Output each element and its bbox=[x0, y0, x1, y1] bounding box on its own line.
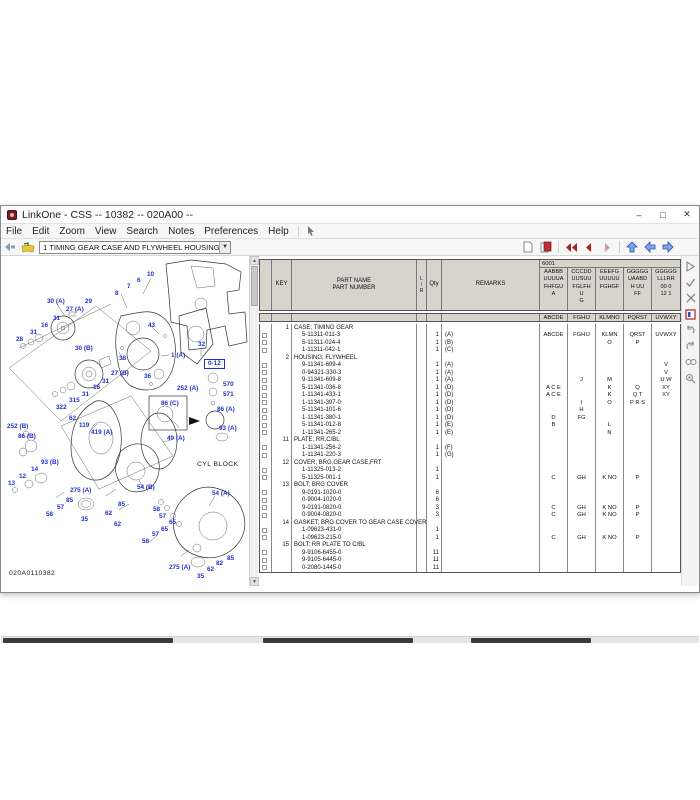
remarks-cell: (D) bbox=[442, 399, 540, 407]
redo-icon[interactable] bbox=[684, 339, 698, 353]
group-row[interactable]: 15BOLT; RR PLATE TO C/BL bbox=[260, 542, 680, 550]
checkbox-cell bbox=[260, 497, 272, 505]
part-row[interactable]: 9-0191-1020-06 bbox=[260, 489, 680, 497]
serial-code: KLMNO bbox=[596, 314, 624, 321]
group-row[interactable]: 11PLATE; RR,C/BL bbox=[260, 437, 680, 445]
checkbox-cell bbox=[260, 332, 272, 340]
scrollbar-thumb[interactable] bbox=[3, 638, 173, 643]
menu-help[interactable]: Help bbox=[263, 226, 294, 237]
qty-cell: 11 bbox=[427, 564, 442, 572]
remarks-cell bbox=[442, 557, 540, 565]
diagram-callout: 31 bbox=[82, 392, 89, 398]
scroll-up-icon[interactable]: ▲ bbox=[250, 256, 259, 265]
qty-cell: 1 bbox=[427, 422, 442, 430]
applicability-cell bbox=[540, 339, 568, 347]
part-cell: 1-11341-256-2 bbox=[292, 444, 417, 452]
part-row[interactable]: 1-11341-265-21(E)N bbox=[260, 429, 680, 437]
lr-cell bbox=[417, 414, 427, 422]
group-row[interactable]: 14GASKET; BRG COVER TO GEAR CASE COVER bbox=[260, 519, 680, 527]
view-selector-value: 1 TIMING GEAR CASE AND FLYWHEEL HOUSING bbox=[40, 243, 219, 252]
applicability-cell bbox=[568, 482, 596, 490]
lr-cell bbox=[417, 429, 427, 437]
applicability-cell bbox=[540, 354, 568, 362]
part-cell: BOLT; RR PLATE TO C/BL bbox=[292, 542, 417, 550]
part-number: 5-11311-011-3 bbox=[292, 332, 340, 338]
group-row[interactable]: 12COVER; BRG,GEAR CASE,FRT bbox=[260, 459, 680, 467]
next-page-icon[interactable] bbox=[599, 240, 615, 254]
serial-column: CCCDD UUSUU FGLFH U G bbox=[568, 268, 596, 310]
applicability-cell: K NO bbox=[596, 504, 624, 512]
part-row[interactable]: 5-11341-036-81(D)A C EKQXY bbox=[260, 384, 680, 392]
applicability-cell bbox=[624, 414, 652, 422]
diagram-callout: 31 bbox=[30, 330, 37, 336]
part-number: 1-09623-431-0 bbox=[292, 527, 341, 533]
part-row[interactable]: 5-11341-101-61(D)H bbox=[260, 407, 680, 415]
qty-cell bbox=[427, 459, 442, 467]
key-cell bbox=[272, 362, 292, 370]
find-icon[interactable] bbox=[684, 355, 698, 369]
app-window: LinkOne - CSS -- 10382 -- 020A00 -- – □ … bbox=[0, 205, 700, 593]
key-cell bbox=[272, 392, 292, 400]
applicability-cell bbox=[596, 444, 624, 452]
menu-preferences[interactable]: Preferences bbox=[199, 226, 263, 237]
group-row[interactable]: 2HOUSING; FLYWHEEL bbox=[260, 354, 680, 362]
row-checkbox[interactable] bbox=[262, 490, 267, 495]
part-name: HOUSING; FLYWHEEL bbox=[292, 355, 357, 361]
diagram-scrollbar[interactable]: ▲ ▼ bbox=[249, 256, 258, 586]
remarks-cell bbox=[442, 527, 540, 535]
applicability-cell bbox=[596, 362, 624, 370]
remark-code: (E) bbox=[442, 422, 453, 428]
applicability-cell bbox=[652, 399, 680, 407]
header-remarks: REMARKS bbox=[442, 260, 540, 310]
applicability-cell bbox=[624, 489, 652, 497]
key-cell bbox=[272, 452, 292, 460]
applicability-cell: M bbox=[596, 377, 624, 385]
row-checkbox[interactable] bbox=[262, 408, 267, 413]
part-row[interactable]: 9-0191-0820-03CGHK NOP bbox=[260, 504, 680, 512]
applicability-cell bbox=[652, 474, 680, 482]
row-checkbox[interactable] bbox=[262, 378, 267, 383]
pointer-icon[interactable] bbox=[304, 224, 320, 238]
part-number: 9-0191-0820-0 bbox=[292, 505, 341, 511]
remarks-cell: (D) bbox=[442, 384, 540, 392]
applicability-cell bbox=[624, 497, 652, 505]
applicability-cell bbox=[596, 347, 624, 355]
qty-cell: 1 bbox=[427, 414, 442, 422]
remarks-cell bbox=[442, 534, 540, 542]
lr-cell bbox=[417, 437, 427, 445]
group-row[interactable]: 13BOLT; BRG COVER bbox=[260, 482, 680, 490]
diagram-callout: 65 bbox=[161, 527, 168, 533]
diagram-callout: 27 (B) bbox=[111, 371, 129, 377]
diagram-callout: 85 bbox=[118, 502, 125, 508]
part-number: 9-9106-6455-0 bbox=[292, 550, 341, 556]
screenshot-canvas: { "window": { "title": "LinkOne - CSS --… bbox=[0, 0, 700, 800]
applicability-cell bbox=[596, 414, 624, 422]
row-checkbox[interactable] bbox=[262, 513, 267, 518]
part-row[interactable]: 5-11341-012-81(E)BL bbox=[260, 422, 680, 430]
first-page-icon[interactable] bbox=[563, 240, 579, 254]
key-cell bbox=[272, 384, 292, 392]
part-row[interactable]: 1-11341-433-11(D)A C EKQ TXY bbox=[260, 392, 680, 400]
key-cell bbox=[272, 422, 292, 430]
part-number: 1-11325-013-2 bbox=[292, 467, 341, 473]
remarks-cell bbox=[442, 542, 540, 550]
row-checkbox[interactable] bbox=[262, 453, 267, 458]
menu-file[interactable]: File bbox=[1, 226, 27, 237]
row-checkbox[interactable] bbox=[262, 528, 267, 533]
remark-code: (G) bbox=[442, 452, 454, 458]
row-checkbox[interactable] bbox=[262, 393, 267, 398]
diagram-text: 020A0110382 bbox=[9, 571, 55, 578]
header-checkbox-col bbox=[260, 260, 272, 310]
applicability-cell bbox=[596, 549, 624, 557]
row-checkbox[interactable] bbox=[262, 333, 267, 338]
part-number: 1-11341-397-0 bbox=[292, 400, 341, 406]
diagram-callout: 58 bbox=[46, 512, 53, 518]
bottom-scrollbar[interactable] bbox=[1, 636, 699, 643]
lr-cell bbox=[417, 369, 427, 377]
lr-cell bbox=[417, 512, 427, 520]
qty-cell: 6 bbox=[427, 489, 442, 497]
checkbox-cell bbox=[260, 459, 272, 467]
back-icon[interactable] bbox=[2, 240, 18, 254]
applicability-cell bbox=[624, 324, 652, 332]
row-checkbox[interactable] bbox=[262, 565, 267, 570]
key-cell: 14 bbox=[272, 519, 292, 527]
applicability-cell: V bbox=[652, 362, 680, 370]
applicability-cell bbox=[652, 354, 680, 362]
part-row[interactable]: 5-11311-011-31(A)ABCDEFGHIJKLMNQRSTUVWXY bbox=[260, 332, 680, 340]
row-checkbox[interactable] bbox=[262, 348, 267, 353]
part-row[interactable]: 1-09623-431-01 bbox=[260, 527, 680, 535]
applicability-cell bbox=[624, 549, 652, 557]
part-row[interactable]: 5-11325-001-11CGHK NOP bbox=[260, 474, 680, 482]
key-cell: 2 bbox=[272, 354, 292, 362]
applicability-cell: FG bbox=[568, 414, 596, 422]
applicability-cell: C bbox=[540, 534, 568, 542]
applicability-cell bbox=[540, 429, 568, 437]
parts-table-pane: KEY PART NAME PART NUMBER L / R Qty REMA… bbox=[259, 256, 681, 586]
part-row[interactable]: 5-11311-024-41(B)OP bbox=[260, 339, 680, 347]
page-icon[interactable] bbox=[520, 240, 536, 254]
part-cell: 9-0191-1020-0 bbox=[292, 489, 417, 497]
parts-table: KEY PART NAME PART NUMBER L / R Qty REMA… bbox=[259, 256, 681, 586]
nav-right-icon[interactable] bbox=[660, 240, 676, 254]
menu-view[interactable]: View bbox=[90, 226, 122, 237]
row-checkbox[interactable] bbox=[262, 498, 267, 503]
applicability-cell: GH bbox=[568, 474, 596, 482]
applicability-cell: UVWXY bbox=[652, 332, 680, 340]
check-icon[interactable] bbox=[684, 275, 698, 289]
nav-up-icon[interactable] bbox=[624, 240, 640, 254]
part-number: 1-11341-256-2 bbox=[292, 445, 341, 451]
run-icon[interactable] bbox=[684, 259, 698, 273]
row-checkbox[interactable] bbox=[262, 550, 267, 555]
scrollbar-thumb[interactable] bbox=[471, 638, 591, 643]
scrollbar-thumb[interactable] bbox=[251, 266, 258, 306]
lr-cell bbox=[417, 392, 427, 400]
applicability-cell bbox=[568, 549, 596, 557]
applicability-cell: K NO bbox=[596, 474, 624, 482]
lr-cell bbox=[417, 399, 427, 407]
header-part: PART NAME PART NUMBER bbox=[292, 260, 417, 310]
remarks-cell bbox=[442, 512, 540, 520]
lr-cell bbox=[417, 564, 427, 572]
applicability-cell bbox=[652, 557, 680, 565]
nav-left-icon[interactable] bbox=[642, 240, 658, 254]
serial-label: 6001 bbox=[540, 260, 680, 268]
applicability-cell: P bbox=[624, 339, 652, 347]
applicability-cell bbox=[652, 437, 680, 445]
checkbox-cell bbox=[260, 392, 272, 400]
applicability-cell: GH bbox=[568, 534, 596, 542]
qty-cell: 1 bbox=[427, 407, 442, 415]
checkbox-cell bbox=[260, 429, 272, 437]
part-row[interactable]: 1-11341-256-21(F) bbox=[260, 444, 680, 452]
scrollbar-thumb[interactable] bbox=[263, 638, 413, 643]
diagram-callout: 31 bbox=[102, 379, 109, 385]
applicability-cell bbox=[652, 467, 680, 475]
applicability-cell bbox=[596, 542, 624, 550]
part-cell: 9-11341-609-4 bbox=[292, 362, 417, 370]
key-cell bbox=[272, 557, 292, 565]
remarks-cell: (D) bbox=[442, 414, 540, 422]
row-checkbox[interactable] bbox=[262, 430, 267, 435]
row-checkbox[interactable] bbox=[262, 340, 267, 345]
lr-cell bbox=[417, 422, 427, 430]
applicability-cell bbox=[624, 527, 652, 535]
applicability-cell: P R S bbox=[624, 399, 652, 407]
part-cell: 0-2080-1445-0 bbox=[292, 564, 417, 572]
key-cell bbox=[272, 497, 292, 505]
applicability-cell: GH bbox=[568, 504, 596, 512]
checkbox-cell bbox=[260, 324, 272, 332]
remarks-cell bbox=[442, 467, 540, 475]
row-checkbox[interactable] bbox=[262, 370, 267, 375]
qty-cell: 1 bbox=[427, 399, 442, 407]
remarks-cell: (A) bbox=[442, 377, 540, 385]
diagram-callout: 57 bbox=[152, 532, 159, 538]
remarks-cell bbox=[442, 549, 540, 557]
close-button[interactable]: ✕ bbox=[675, 206, 699, 223]
diagram-callout: 62 bbox=[114, 522, 121, 528]
diagram-callout: 35 bbox=[197, 574, 204, 580]
zoom-icon[interactable] bbox=[684, 371, 698, 385]
applicability-cell bbox=[568, 452, 596, 460]
row-checkbox[interactable] bbox=[262, 363, 267, 368]
part-cell: 1-11341-380-1 bbox=[292, 414, 417, 422]
scroll-down-icon[interactable]: ▼ bbox=[250, 577, 259, 586]
applicability-cell: A C E bbox=[540, 392, 568, 400]
row-checkbox[interactable] bbox=[262, 445, 267, 450]
applicability-cell bbox=[540, 519, 568, 527]
part-row[interactable]: 1-11325-013-21 bbox=[260, 467, 680, 475]
applicability-cell bbox=[596, 452, 624, 460]
qty-cell: 11 bbox=[427, 557, 442, 565]
part-row[interactable]: 0-9004-0820-03CGHK NOP bbox=[260, 512, 680, 520]
part-row[interactable]: 0-94321-330-31(A)V bbox=[260, 369, 680, 377]
group-row[interactable]: 1CASE; TIMING GEAR bbox=[260, 324, 680, 332]
part-row[interactable]: 1-09623-215-01CGHK NOP bbox=[260, 534, 680, 542]
applicability-cell: L bbox=[596, 422, 624, 430]
row-checkbox[interactable] bbox=[262, 535, 267, 540]
diagram-callout: 36 bbox=[144, 374, 151, 380]
applicability-cell bbox=[624, 482, 652, 490]
applicability-cell bbox=[540, 407, 568, 415]
applicability-cell bbox=[540, 347, 568, 355]
applicability-cell: XY bbox=[652, 392, 680, 400]
applicability-cell bbox=[624, 467, 652, 475]
applicability-cell bbox=[652, 482, 680, 490]
header-qty: Qty bbox=[427, 260, 442, 310]
applicability-cell bbox=[540, 557, 568, 565]
part-number: 9-0191-1020-0 bbox=[292, 490, 341, 496]
diagram-callout: 28 bbox=[16, 337, 23, 343]
applicability-cell bbox=[652, 422, 680, 430]
applicability-cell bbox=[596, 467, 624, 475]
checkbox-cell bbox=[260, 512, 272, 520]
remark-code: (D) bbox=[442, 415, 453, 421]
diagram-callout: 13 bbox=[8, 481, 15, 487]
part-row[interactable]: 9-9105-6445-011 bbox=[260, 557, 680, 565]
row-checkbox[interactable] bbox=[262, 505, 267, 510]
applicability-cell bbox=[540, 324, 568, 332]
part-row[interactable]: 0-9004-1020-06 bbox=[260, 497, 680, 505]
key-cell: 1 bbox=[272, 324, 292, 332]
key-cell bbox=[272, 504, 292, 512]
menu-zoom[interactable]: Zoom bbox=[54, 226, 90, 237]
diagram-callout: 49 (A) bbox=[167, 436, 185, 442]
checkbox-cell bbox=[260, 377, 272, 385]
remarks-cell bbox=[442, 489, 540, 497]
diagram-callout: 6 bbox=[137, 278, 141, 284]
part-row[interactable]: 0-2080-1445-011 bbox=[260, 564, 680, 572]
menu-notes[interactable]: Notes bbox=[163, 226, 199, 237]
part-cell: GASKET; BRG COVER TO GEAR CASE COVER bbox=[292, 519, 417, 527]
remarks-cell: (E) bbox=[442, 422, 540, 430]
lr-cell bbox=[417, 519, 427, 527]
diagram-pane: 1067830 (A)2927 (A)31163128433230 (B)381… bbox=[1, 256, 249, 586]
menu-search[interactable]: Search bbox=[121, 226, 163, 237]
remarks-cell: (B) bbox=[442, 339, 540, 347]
applicability-cell bbox=[568, 392, 596, 400]
diagram-callout: 29 bbox=[85, 299, 92, 305]
row-checkbox[interactable] bbox=[262, 385, 267, 390]
minimize-button[interactable]: – bbox=[627, 206, 651, 223]
part-row[interactable]: 1-11341-397-01(D)IOP R S bbox=[260, 399, 680, 407]
applicability-cell bbox=[540, 527, 568, 535]
applicability-cell bbox=[652, 549, 680, 557]
lr-cell bbox=[417, 347, 427, 355]
red-book-icon[interactable] bbox=[538, 240, 554, 254]
applicability-cell bbox=[624, 429, 652, 437]
applicability-cell bbox=[652, 347, 680, 355]
diagram-callout: 35 bbox=[81, 517, 88, 523]
part-number: 9-9105-6445-0 bbox=[292, 557, 341, 563]
key-cell bbox=[272, 399, 292, 407]
applicability-cell bbox=[568, 542, 596, 550]
remarks-cell: (D) bbox=[442, 392, 540, 400]
applicability-cell bbox=[596, 437, 624, 445]
key-cell bbox=[272, 474, 292, 482]
part-number: 1-11341-380-1 bbox=[292, 415, 341, 421]
part-number: 5-11311-024-4 bbox=[292, 340, 340, 346]
part-row[interactable]: 1-11341-220-31(G) bbox=[260, 452, 680, 460]
remarks-cell: (D) bbox=[442, 407, 540, 415]
lr-cell bbox=[417, 474, 427, 482]
part-row[interactable]: 9-9106-6455-011 bbox=[260, 549, 680, 557]
checkbox-cell bbox=[260, 354, 272, 362]
row-checkbox[interactable] bbox=[262, 415, 267, 420]
open-book-icon[interactable] bbox=[20, 240, 36, 254]
diagram-callout: 62 bbox=[69, 416, 76, 422]
part-row[interactable]: 1-11341-380-11(D)DFG bbox=[260, 414, 680, 422]
diagram-callout: 14 bbox=[31, 467, 38, 473]
applicability-cell bbox=[624, 452, 652, 460]
applicability-cell bbox=[540, 497, 568, 505]
checkbox-cell bbox=[260, 362, 272, 370]
chevron-down-icon[interactable]: ▼ bbox=[219, 242, 230, 253]
prev-page-icon[interactable] bbox=[581, 240, 597, 254]
diagram-callout: 570 bbox=[223, 382, 234, 388]
view-selector[interactable]: 1 TIMING GEAR CASE AND FLYWHEEL HOUSING … bbox=[39, 241, 231, 254]
part-cell: 9-0191-0820-0 bbox=[292, 504, 417, 512]
window-title: LinkOne - CSS -- 10382 -- 020A00 -- bbox=[22, 209, 193, 221]
row-checkbox[interactable] bbox=[262, 468, 267, 473]
lr-cell bbox=[417, 384, 427, 392]
applicability-cell bbox=[596, 459, 624, 467]
applicability-cell bbox=[568, 527, 596, 535]
info-icon[interactable] bbox=[684, 307, 698, 321]
key-cell bbox=[272, 564, 292, 572]
row-checkbox[interactable] bbox=[262, 423, 267, 428]
qty-cell: 1 bbox=[427, 534, 442, 542]
header-key: KEY bbox=[272, 260, 292, 310]
checkbox-cell bbox=[260, 542, 272, 550]
part-row[interactable]: 1-11311-042-11(C) bbox=[260, 347, 680, 355]
maximize-button[interactable]: □ bbox=[651, 206, 675, 223]
row-checkbox[interactable] bbox=[262, 558, 267, 563]
applicability-cell bbox=[540, 489, 568, 497]
part-cell: 1-11341-265-2 bbox=[292, 429, 417, 437]
applicability-cell bbox=[568, 369, 596, 377]
diagram-callout: 0-12 bbox=[204, 359, 225, 369]
applicability-cell bbox=[568, 324, 596, 332]
row-checkbox[interactable] bbox=[262, 475, 267, 480]
lr-cell bbox=[417, 444, 427, 452]
diagram-callout: 322 bbox=[56, 405, 67, 411]
cancel-icon[interactable] bbox=[684, 291, 698, 305]
applicability-cell bbox=[596, 489, 624, 497]
applicability-cell bbox=[568, 489, 596, 497]
part-number: 9-11341-609-8 bbox=[292, 377, 341, 383]
row-checkbox[interactable] bbox=[262, 400, 267, 405]
part-cell: 5-11341-101-6 bbox=[292, 407, 417, 415]
applicability-cell: KLMN bbox=[596, 332, 624, 340]
key-cell bbox=[272, 369, 292, 377]
applicability-cell: GH bbox=[568, 512, 596, 520]
applicability-cell: I bbox=[568, 399, 596, 407]
menu-edit[interactable]: Edit bbox=[27, 226, 54, 237]
checkbox-cell bbox=[260, 557, 272, 565]
remarks-cell: (A) bbox=[442, 332, 540, 340]
part-row[interactable]: 9-11341-609-81(A)JMU W bbox=[260, 377, 680, 385]
diagram-callout: 119 bbox=[79, 423, 89, 429]
part-row[interactable]: 9-11341-609-41(A)V bbox=[260, 362, 680, 370]
undo-icon[interactable] bbox=[684, 323, 698, 337]
